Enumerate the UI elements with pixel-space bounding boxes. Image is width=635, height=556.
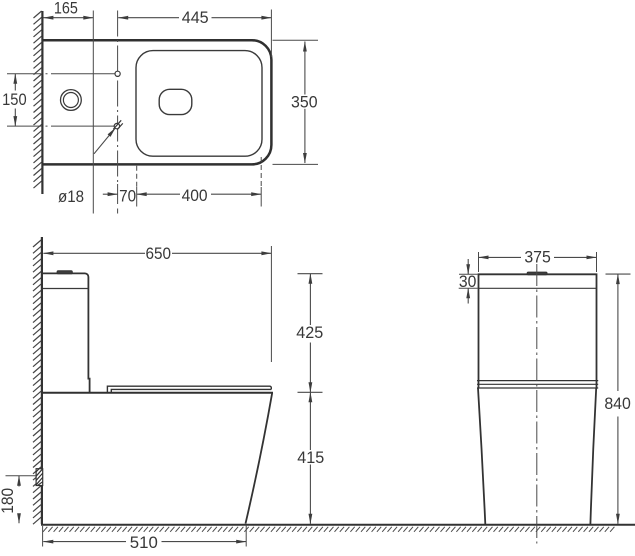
svg-text:150: 150	[2, 90, 27, 109]
svg-text:425: 425	[296, 323, 323, 342]
svg-text:165: 165	[54, 0, 78, 17]
svg-text:445: 445	[182, 8, 209, 27]
svg-text:30: 30	[459, 272, 477, 291]
svg-text:400: 400	[182, 186, 208, 205]
svg-text:70: 70	[119, 187, 136, 206]
svg-text:840: 840	[604, 394, 631, 413]
svg-text:180: 180	[0, 488, 17, 514]
svg-text:510: 510	[130, 533, 158, 552]
svg-text:350: 350	[291, 93, 318, 112]
svg-text:375: 375	[524, 247, 551, 266]
svg-text:650: 650	[146, 244, 172, 263]
svg-text:ø18: ø18	[58, 187, 84, 206]
svg-text:415: 415	[297, 448, 324, 467]
